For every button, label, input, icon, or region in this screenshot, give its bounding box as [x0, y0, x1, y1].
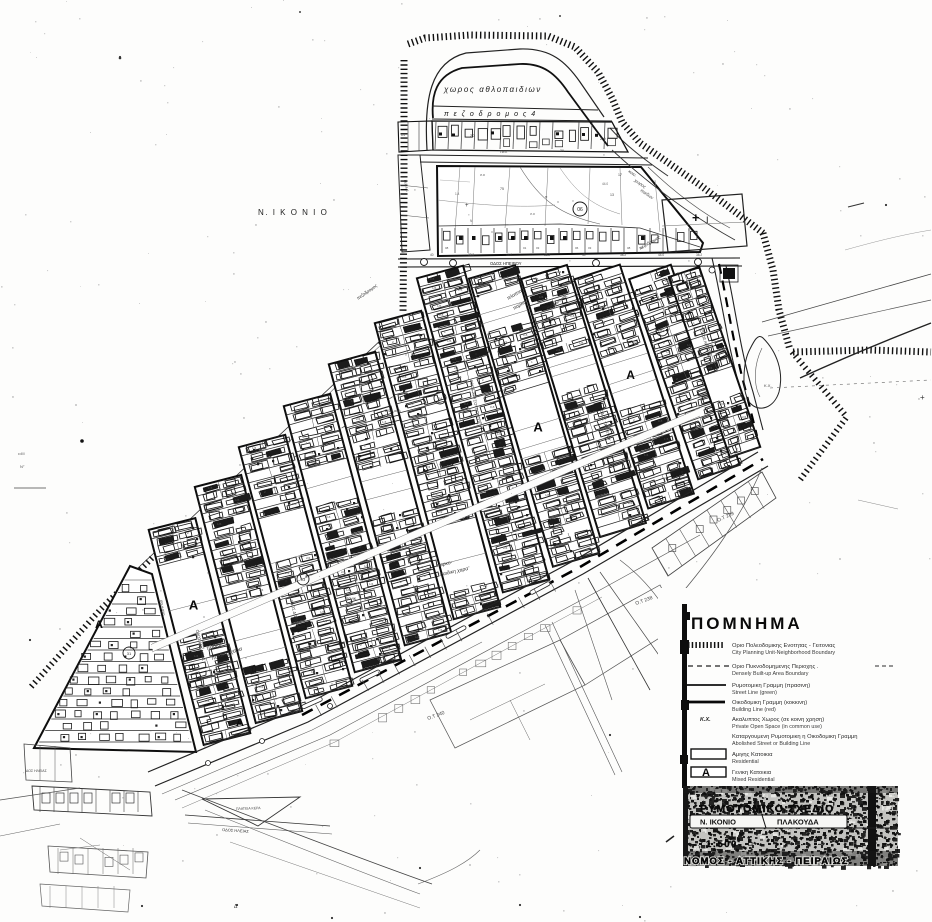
- svg-text:+: +: [465, 203, 469, 209]
- svg-text:Γενικη Κατοικια: Γενικη Κατοικια: [732, 770, 772, 776]
- svg-text:2.0: 2.0: [600, 136, 606, 141]
- svg-text:Ν°: Ν°: [20, 464, 25, 469]
- svg-text:08: 08: [627, 246, 631, 250]
- svg-text:1/2: 1/2: [401, 133, 406, 137]
- svg-text:Private Open Space (in common: Private Open Space (in common use): [732, 724, 822, 730]
- svg-text:Κ.Χ.: Κ.Χ.: [700, 717, 711, 723]
- svg-text:+: +: [692, 210, 700, 225]
- svg-text:40: 40: [582, 253, 586, 257]
- svg-text:Οικοδομικη Γραμμη (κοκκινη): Οικοδομικη Γραμμη (κοκκινη): [732, 700, 807, 706]
- svg-text:Α: Α: [533, 420, 543, 435]
- svg-text:13: 13: [610, 193, 614, 197]
- svg-text:ΒΦλ.οπλ: ΒΦλ.οπλ: [385, 408, 401, 413]
- svg-text:ΝΟΜΟΣ - ΑΤΤΙΚΗΣ - ΠΕΙΡΑΙΩΣ: ΝΟΜΟΣ - ΑΤΤΙΚΗΣ - ΠΕΙΡΑΙΩΣ: [684, 856, 848, 867]
- svg-text:Abolished Street or Building L: Abolished Street or Building Line: [732, 741, 810, 747]
- svg-text:1.4: 1.4: [455, 192, 460, 196]
- svg-text:Α: Α: [236, 717, 244, 729]
- svg-text:08: 08: [445, 246, 449, 250]
- svg-text:06: 06: [575, 246, 579, 250]
- svg-text:03: 03: [536, 246, 540, 250]
- svg-text:Βονικ.: Βονικ.: [345, 596, 357, 601]
- svg-text:06: 06: [577, 207, 583, 213]
- svg-text:1:500: 1:500: [706, 839, 738, 850]
- svg-text:ΟΔΟΣ ΗΠΕΙΡΟΥ: ΟΔΟΣ ΗΠΕΙΡΟΥ: [490, 261, 522, 266]
- svg-text:Ν. ΙΚΟΝΙΟ: Ν. ΙΚΟΝΙΟ: [700, 818, 736, 827]
- svg-text:ΠΕΛ: ΠΕΛ: [500, 150, 508, 154]
- svg-text:ΔΟΣ ΗΛΕΙΑΣ: ΔΟΣ ΗΛΕΙΑΣ: [26, 769, 48, 773]
- svg-text:Καταργουμενη Ρυμοτομικη η Οικο: Καταργουμενη Ρυμοτομικη η Οικοδομικη Γρα…: [732, 734, 858, 740]
- svg-text:Α: Α: [626, 368, 635, 382]
- svg-text:Ρυμοτομικη Γραμμη (πρασινη): Ρυμοτομικη Γραμμη (πρασινη): [732, 683, 810, 689]
- svg-text:39: 39: [560, 149, 564, 153]
- svg-text:04: 04: [438, 396, 443, 401]
- svg-text:40: 40: [430, 253, 434, 257]
- svg-text:Αμιγης Κατοικια: Αμιγης Κατοικια: [732, 752, 773, 758]
- svg-text:+: +: [920, 393, 925, 402]
- svg-text:Α: Α: [95, 619, 103, 631]
- svg-text:44.0: 44.0: [658, 253, 664, 257]
- svg-text:City Planning Unit-Neighborhoo: City Planning Unit-Neighborhood Boundary: [732, 650, 835, 656]
- svg-text:Ακαλυπτος Χωρος (σε κοινη χρησ: Ακαλυπτος Χωρος (σε κοινη χρηση): [732, 717, 824, 723]
- svg-text:Ι: Ι: [706, 215, 709, 225]
- svg-text:02: 02: [503, 340, 508, 345]
- svg-text:44.0: 44.0: [506, 253, 512, 257]
- svg-text:44.0: 44.0: [602, 182, 608, 186]
- svg-text:0λ: 0λ: [660, 328, 664, 333]
- svg-text:χωρος αθλοπαιδιων: χωρος αθλοπαιδιων: [443, 85, 542, 94]
- svg-text:38.2: 38.2: [620, 253, 626, 257]
- svg-text:Οριο Πυκνοδομημενης Περιοχης: Οριο Πυκνοδομημενης Περιοχης .: [732, 664, 819, 670]
- svg-text:ΠΛΑΚΟΥΔΑ: ΠΛΑΚΟΥΔΑ: [777, 818, 819, 827]
- svg-text:Α: Α: [702, 767, 710, 779]
- svg-text:Οριο Πολεοδομικης Ενοτητας - Γ: Οριο Πολεοδομικης Ενοτητας - Γειτονιας: [732, 643, 835, 649]
- svg-text:38.2: 38.2: [544, 253, 550, 257]
- svg-text:03: 03: [588, 246, 592, 250]
- svg-text:38.2: 38.2: [696, 253, 702, 257]
- svg-text:Residential: Residential: [732, 759, 759, 765]
- svg-text:σ.α: σ.α: [530, 212, 535, 216]
- svg-text:ι=ΙΙΙ: ι=ΙΙΙ: [18, 451, 25, 456]
- svg-text:Mixed Residential: Mixed Residential: [732, 777, 775, 783]
- svg-text:Street Line (green): Street Line (green): [732, 690, 777, 696]
- svg-text:75: 75: [500, 187, 504, 191]
- svg-text:03: 03: [301, 577, 306, 582]
- svg-text:Κ.Χ.: Κ.Χ.: [764, 383, 772, 388]
- svg-text:20: 20: [470, 133, 475, 138]
- svg-text:ΠΟΜΝΗΜΑ: ΠΟΜΝΗΜΑ: [691, 614, 803, 633]
- svg-text:01: 01: [523, 246, 527, 250]
- svg-text:Building Line (red): Building Line (red): [732, 707, 776, 713]
- svg-text:31: 31: [127, 651, 132, 656]
- svg-text:ΡΥΜΟΤΟΜΙΚΟ ΣΧΕΔΙΟ: ΡΥΜΟΤΟΜΙΚΟ ΣΧΕΔΙΟ: [700, 803, 835, 815]
- svg-text:Α: Α: [189, 598, 199, 613]
- svg-text:σ.α: σ.α: [480, 173, 485, 177]
- svg-text:N. I K O N I O: N. I K O N I O: [258, 208, 328, 217]
- svg-text:π ε ζ ο δ ρ ο μ ο ς 4: π ε ζ ο δ ρ ο μ ο ς 4: [444, 111, 537, 118]
- svg-text:Densely Built-up Area Boundary: Densely Built-up Area Boundary: [732, 671, 809, 677]
- svg-text:38.2: 38.2: [468, 253, 474, 257]
- svg-text:17: 17: [618, 173, 622, 177]
